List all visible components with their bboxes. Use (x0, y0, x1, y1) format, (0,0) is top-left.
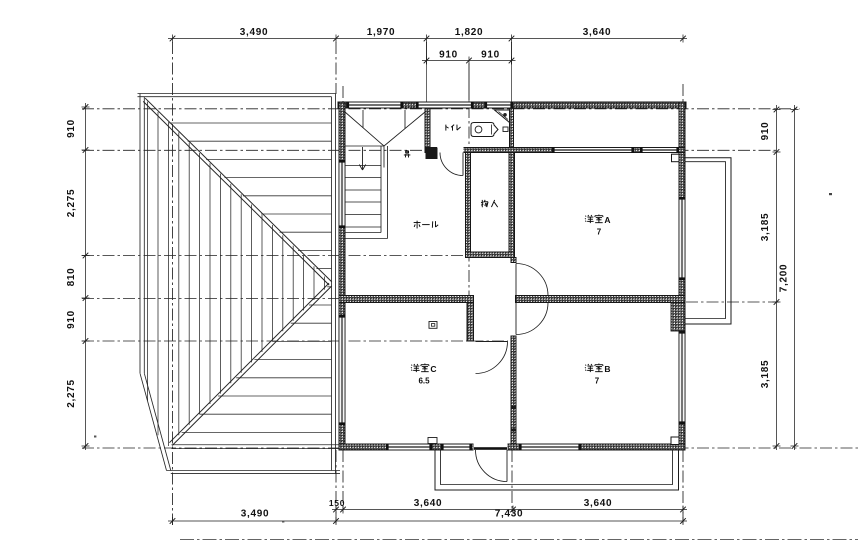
svg-text:910: 910 (760, 122, 771, 141)
svg-text:810: 810 (66, 268, 77, 287)
svg-text:3,640: 3,640 (583, 27, 612, 38)
svg-text:3,185: 3,185 (760, 360, 771, 389)
svg-text:910: 910 (66, 119, 77, 138)
svg-text:910: 910 (439, 50, 458, 61)
svg-text:1,970: 1,970 (367, 27, 396, 38)
svg-text:3,490: 3,490 (240, 27, 269, 38)
svg-text:3,640: 3,640 (414, 498, 443, 509)
svg-text:B: B (604, 364, 610, 374)
svg-text:3,490: 3,490 (241, 509, 270, 520)
svg-text:7: 7 (597, 228, 602, 237)
svg-text:A: A (604, 215, 610, 225)
svg-text:7,430: 7,430 (495, 509, 524, 520)
svg-text:2,275: 2,275 (66, 189, 77, 218)
svg-text:C: C (430, 364, 436, 374)
svg-text:3,185: 3,185 (760, 213, 771, 242)
svg-text:2,275: 2,275 (66, 379, 77, 408)
svg-text:910: 910 (66, 310, 77, 329)
svg-text:3,640: 3,640 (584, 498, 613, 509)
svg-text:6.5: 6.5 (418, 377, 430, 386)
svg-text:1,820: 1,820 (455, 27, 484, 38)
svg-text:150: 150 (329, 498, 345, 508)
svg-text:7,200: 7,200 (779, 264, 790, 293)
svg-text:7: 7 (595, 377, 600, 386)
svg-text:910: 910 (481, 50, 500, 61)
